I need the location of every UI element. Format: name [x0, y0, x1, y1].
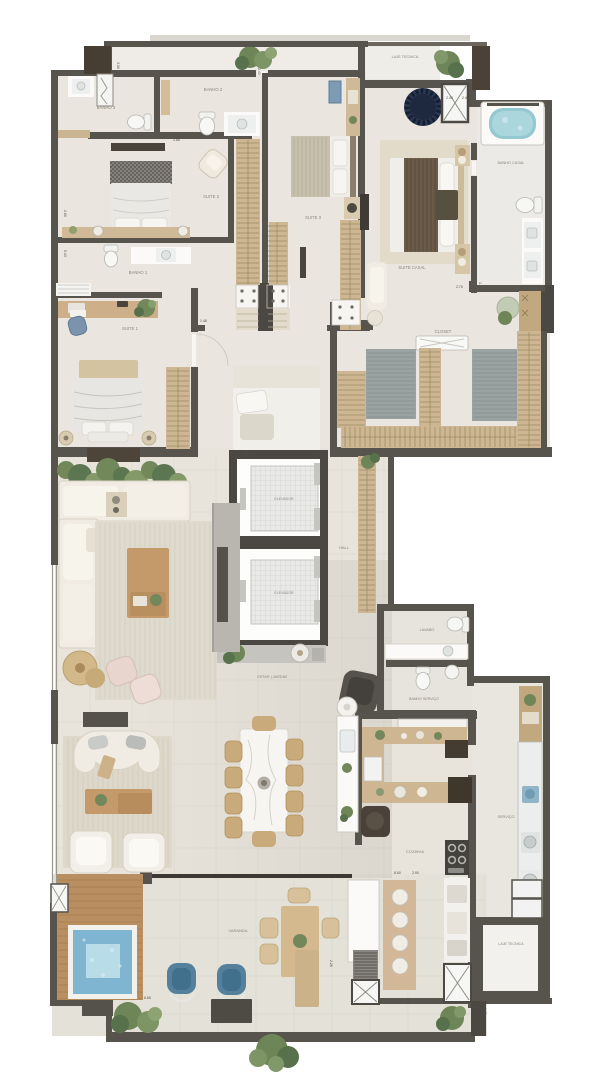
svg-text:2.40: 2.40	[462, 96, 469, 100]
svg-text:COZINHA: COZINHA	[406, 849, 424, 854]
svg-text:3.08: 3.08	[116, 62, 120, 69]
svg-text:2.45: 2.45	[257, 68, 261, 75]
svg-text:2.88: 2.88	[173, 138, 180, 142]
svg-text:SUITE 1: SUITE 1	[122, 326, 138, 331]
svg-text:ESTAR | JARDIM: ESTAR | JARDIM	[257, 675, 287, 679]
svg-text:2.26: 2.26	[329, 960, 333, 967]
svg-text:BANHO 1: BANHO 1	[129, 270, 148, 275]
svg-text:1.53: 1.53	[478, 282, 482, 289]
svg-text:2.80: 2.80	[63, 210, 67, 217]
svg-text:HALL: HALL	[339, 545, 350, 550]
svg-text:8.60: 8.60	[394, 871, 401, 875]
svg-text:4.07: 4.07	[243, 452, 250, 456]
svg-text:ELEVADOR: ELEVADOR	[274, 591, 294, 595]
svg-text:5.43: 5.43	[63, 250, 67, 257]
svg-text:BANHO CASAL: BANHO CASAL	[497, 161, 524, 165]
svg-text:BANHO 2: BANHO 2	[204, 87, 223, 92]
svg-text:BANHO 3: BANHO 3	[97, 105, 116, 110]
svg-text:ELEVADOR: ELEVADOR	[274, 497, 294, 501]
svg-text:2.43: 2.43	[446, 96, 453, 100]
svg-text:VARANDA: VARANDA	[228, 928, 247, 933]
svg-text:2.76: 2.76	[456, 285, 463, 289]
svg-text:1.83: 1.83	[483, 1008, 487, 1015]
svg-text:1.48: 1.48	[200, 319, 207, 323]
svg-text:LAVABO: LAVABO	[420, 628, 435, 632]
svg-text:LAJE TECNICA: LAJE TECNICA	[498, 942, 524, 946]
svg-text:SUITE 3: SUITE 3	[305, 215, 321, 220]
svg-text:LAJE TECNICA: LAJE TECNICA	[392, 55, 419, 59]
svg-text:2.90: 2.90	[412, 871, 419, 875]
svg-text:2.28: 2.28	[380, 620, 384, 627]
svg-text:6.65: 6.65	[144, 996, 151, 1000]
svg-text:BANHO SERVIÇO: BANHO SERVIÇO	[409, 697, 439, 701]
svg-text:SERVIÇO: SERVIÇO	[497, 815, 514, 819]
svg-text:SUITE 2: SUITE 2	[203, 194, 219, 199]
svg-text:SUITE CASAL: SUITE CASAL	[398, 265, 426, 270]
svg-text:CLOSET: CLOSET	[435, 329, 452, 334]
